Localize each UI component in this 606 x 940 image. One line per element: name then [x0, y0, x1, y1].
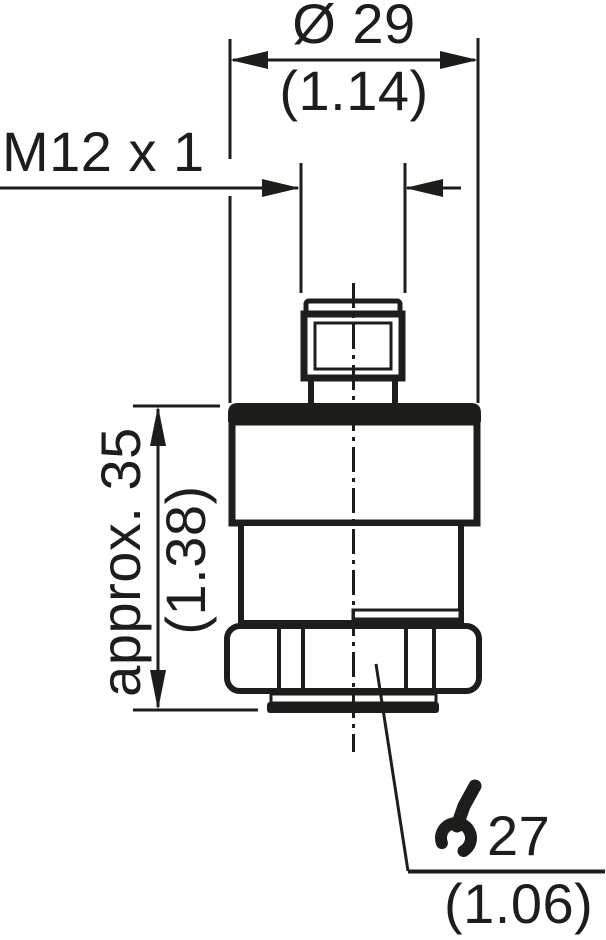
technical-drawing-page: Ø 29 (1.14) M12 x 1 approx. 35 (1.38) 27… [0, 0, 606, 940]
wrench-size-metric-label: 27 [487, 808, 550, 864]
wrench-size-imperial-label: (1.06) [444, 876, 593, 932]
diameter-imperial-label: (1.14) [230, 63, 478, 119]
body-lower-section [241, 523, 461, 623]
height-imperial-label: (1.38) [158, 400, 214, 720]
wrench-icon [441, 786, 475, 851]
height-metric-label: approx. 35 [93, 402, 149, 722]
diameter-metric-label: Ø 29 [230, 0, 478, 52]
arrowhead-right [262, 179, 300, 197]
thread-label: M12 x 1 [2, 124, 205, 180]
body-step-detail [353, 610, 460, 619]
arrowhead-left [405, 179, 443, 197]
